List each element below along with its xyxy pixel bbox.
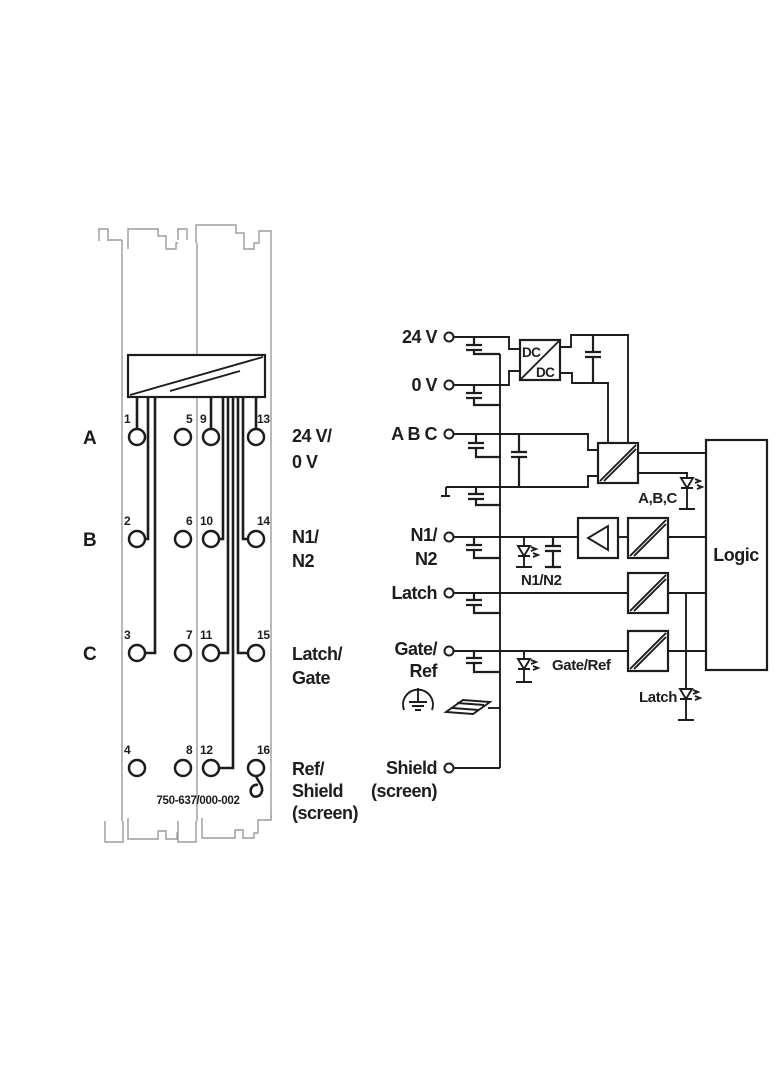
schematic-drawing: 24 V 0 V A B C N1/ N2 Latch Gate/ Ref Sh… [371,327,767,801]
terminal-contact-1 [129,429,145,445]
row-signal-labels: 24 V/ 0 V N1/ N2 Latch/ Gate Ref/ Shield… [292,426,359,823]
module-drawing: 1 5 9 13 2 6 10 14 3 7 11 15 4 8 12 16 A… [83,225,359,842]
input-terminal-0v [445,381,454,390]
part-number: 750-637/000-002 [156,795,239,807]
logic-block: Logic [706,440,767,670]
row-letter-a: A [83,428,97,449]
row-d-label-line1: Ref/ [292,759,325,779]
input-terminal-n1n2 [445,533,454,542]
isolation-barrier-latch [628,573,668,613]
input-terminal-shield [445,764,454,773]
input-label-shield: Shield [386,758,437,778]
input-label-abc: A B C [391,424,437,444]
capacitor-abc-2 [511,434,527,487]
wire-terminal-12 [219,397,233,768]
input-label-screen: (screen) [371,781,438,801]
terminal-contact-9 [203,429,219,445]
row-a-label-line1: 24 V/ [292,426,332,446]
row-b-label-line2: N2 [292,551,314,571]
input-label-latch: Latch [391,583,437,603]
input-terminal-24v [445,333,454,342]
row-c-label-line1: Latch/ [292,644,343,664]
isolation-barrier-n1n2 [628,518,668,558]
input-label-24v: 24 V [402,327,438,347]
wire-terminal-2 [145,397,148,539]
led-label-abc: A,B,C [638,490,677,507]
capacitor-latch [466,593,500,613]
capacitor-internal [468,487,500,505]
din-rail-bottom-outline [105,815,271,842]
row-a-label-line2: 0 V [292,452,318,472]
terminal-contact-12 [203,760,219,776]
led-abc [679,478,702,509]
terminal-number: 16 [257,743,270,757]
internal-reference-tick [441,487,450,496]
terminal-number: 3 [124,628,131,642]
input-label-n2: N2 [415,549,437,569]
dc-dc-converter: DC DC [520,340,560,380]
terminal-contact-5 [175,429,191,445]
wire-0v [454,371,521,385]
row-letter-b: B [83,530,96,551]
wire-terminal-3 [145,397,155,653]
din-rail-icon [446,700,490,714]
terminal-contact-2 [129,531,145,547]
dc-dc-label-top: DC [522,345,541,360]
schematic-input-labels: 24 V 0 V A B C N1/ N2 Latch Gate/ Ref Sh… [371,327,439,801]
dc-dc-label-bottom: DC [536,365,555,380]
terminal-contact-15 [248,645,264,661]
input-terminal-latch [445,589,454,598]
row-letter-c: C [83,644,97,665]
row-c-label-line2: Gate [292,668,331,688]
input-label-gate: Gate/ [394,639,437,659]
row-d-label-line2: Shield [292,781,343,801]
capacitor-0v [466,385,500,405]
terminal-number: 2 [124,514,131,528]
shield-hook [251,776,262,797]
terminal-number: 14 [257,514,270,528]
input-label-0v: 0 V [411,375,437,395]
terminal-contact-11 [203,645,219,661]
isolation-barrier-gateref [628,631,668,671]
wire-terminal-10 [219,397,223,539]
capacitor-n1n2-1 [466,537,500,558]
din-rail-top-outline [99,225,271,249]
terminal-number: 15 [257,628,270,642]
capacitor-gateref [466,651,500,672]
wiring-diagram: 1 5 9 13 2 6 10 14 3 7 11 15 4 8 12 16 A… [0,0,784,1066]
terminal-number: 13 [257,412,270,426]
input-terminal-abc [445,430,454,439]
led-label-gateref: Gate/Ref [552,657,612,674]
led-label-latch: Latch [639,689,677,706]
terminal-contact-14 [248,531,264,547]
terminal-number: 4 [124,743,131,757]
functional-earth-symbol [403,688,433,710]
capacitor-24v [466,337,500,354]
dc-dc-output-bottom [560,373,608,443]
wire-24v [454,337,521,349]
row-b-label-line1: N1/ [292,527,319,547]
terminal-number: 8 [186,743,193,757]
terminal-contact-6 [175,531,191,547]
terminal-contact-13 [248,429,264,445]
connection-diagram-page: 1 5 9 13 2 6 10 14 3 7 11 15 4 8 12 16 A… [0,0,784,1066]
terminal-number: 10 [200,514,213,528]
input-label-n1: N1/ [410,525,437,545]
terminal-number: 5 [186,412,193,426]
led-n1n2 [516,537,538,567]
led-latch [678,689,700,720]
terminal-contact-7 [175,645,191,661]
terminal-contact-8 [175,760,191,776]
comparator-box [578,518,618,558]
led-gateref [516,651,538,682]
capacitor-abc-1 [468,434,500,457]
input-label-ref: Ref [409,661,438,681]
terminal-number: 11 [200,628,213,642]
isolation-barrier-abc [598,443,638,483]
terminal-contact-3 [129,645,145,661]
terminal-number: 12 [200,743,213,757]
terminal-contact-16 [248,760,264,776]
terminal-contact-4 [129,760,145,776]
capacitor-dcdc [585,335,601,383]
terminal-contact-10 [203,531,219,547]
input-terminal-gateref [445,647,454,656]
row-letters: A B C [83,428,97,665]
logic-label: Logic [713,545,759,565]
terminal-number: 7 [186,628,193,642]
terminal-number: 1 [124,412,131,426]
terminal-number: 9 [200,412,207,426]
row-d-label-line3: (screen) [292,803,359,823]
terminal-number: 6 [186,514,193,528]
led-label-n1n2: N1/N2 [521,572,562,589]
capacitor-n1n2-2 [545,537,561,567]
wire-terminal-14 [243,397,248,539]
wire-internal-reference [446,476,598,487]
